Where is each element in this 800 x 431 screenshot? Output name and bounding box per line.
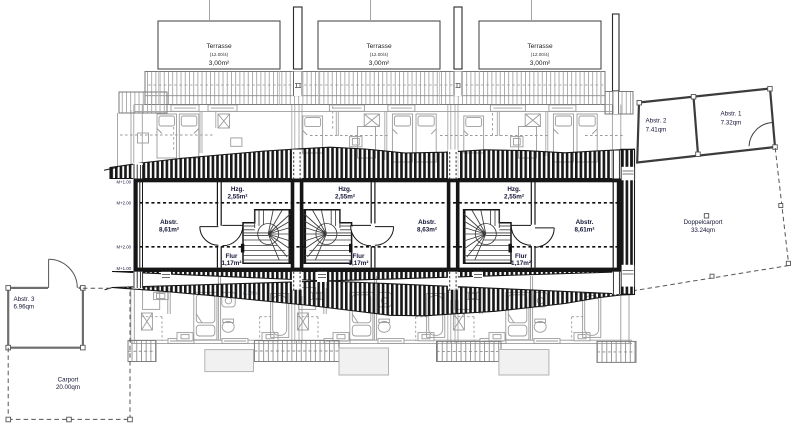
svg-text:Abstr.: Abstr. <box>576 219 594 226</box>
svg-text:33.24qm: 33.24qm <box>691 227 715 234</box>
svg-text:Hzg.: Hzg. <box>507 186 521 193</box>
svg-text:7.32qm: 7.32qm <box>721 120 742 127</box>
svg-text:(12.00/4): (12.00/4) <box>370 52 389 57</box>
svg-text:M+2.00: M+2.00 <box>117 245 132 250</box>
svg-text:(12.00/4): (12.00/4) <box>531 52 550 57</box>
svg-text:Hzg.: Hzg. <box>338 186 352 193</box>
svg-text:M+2.00: M+2.00 <box>117 201 132 206</box>
svg-text:Terrasse: Terrasse <box>527 43 553 50</box>
svg-text:M+1.00: M+1.00 <box>117 266 132 271</box>
svg-text:Terrasse: Terrasse <box>366 43 392 50</box>
svg-text:Flur: Flur <box>353 253 365 260</box>
svg-text:8,61m²: 8,61m² <box>159 227 179 234</box>
svg-text:Abstr.: Abstr. <box>418 219 436 226</box>
svg-text:2,55m²: 2,55m² <box>504 194 524 201</box>
svg-text:2,55m²: 2,55m² <box>335 194 355 201</box>
svg-text:Hzg.: Hzg. <box>231 186 245 193</box>
svg-text:2,55m²: 2,55m² <box>228 194 248 201</box>
svg-text:3,00m²: 3,00m² <box>209 60 230 67</box>
svg-text:1,17m²: 1,17m² <box>349 260 369 267</box>
svg-text:6.96qm: 6.96qm <box>14 304 35 311</box>
svg-text:Abstr. 3: Abstr. 3 <box>14 296 36 303</box>
svg-text:8,63m²: 8,63m² <box>417 227 437 234</box>
svg-text:Abstr. 1: Abstr. 1 <box>721 111 743 118</box>
svg-text:(12.00/4): (12.00/4) <box>210 52 229 57</box>
svg-text:20.00qm: 20.00qm <box>56 384 80 391</box>
svg-text:Doppelcarport: Doppelcarport <box>684 219 723 226</box>
svg-text:8,61m²: 8,61m² <box>575 227 595 234</box>
svg-text:Terrasse: Terrasse <box>206 43 232 50</box>
svg-text:3,00m²: 3,00m² <box>369 60 390 67</box>
svg-text:3,00m²: 3,00m² <box>530 60 551 67</box>
svg-text:1,17m²: 1,17m² <box>222 260 242 267</box>
svg-text:1,17m²: 1,17m² <box>511 260 531 267</box>
svg-text:Carport: Carport <box>58 377 79 384</box>
svg-text:Flur: Flur <box>226 253 238 260</box>
svg-text:Abstr.: Abstr. <box>160 219 178 226</box>
svg-text:7.41qm: 7.41qm <box>646 127 667 134</box>
svg-text:Flur: Flur <box>515 253 527 260</box>
svg-text:M+1.00: M+1.00 <box>117 180 132 185</box>
svg-text:Abstr. 2: Abstr. 2 <box>646 118 668 125</box>
